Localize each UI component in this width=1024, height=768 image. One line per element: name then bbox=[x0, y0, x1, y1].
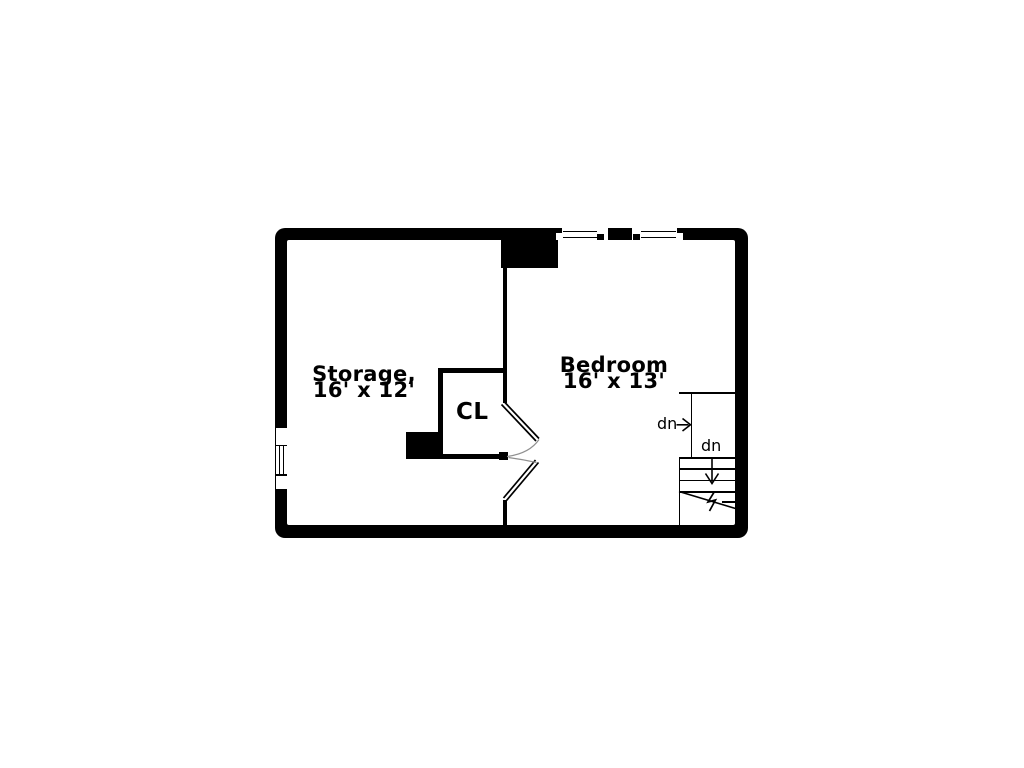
closet-wall-top bbox=[438, 368, 507, 373]
closet-label: CL bbox=[456, 401, 489, 424]
chimney-block bbox=[501, 239, 558, 268]
floor-plan: Storage, 16' x 12' Bedroom 16' x 13' CL … bbox=[0, 0, 1024, 768]
window-top-2-frame-left bbox=[633, 234, 640, 240]
divider-wall-upper bbox=[503, 268, 508, 403]
storage-room-label: Storage, 16' x 12' bbox=[305, 367, 423, 398]
closet-solid-block bbox=[406, 432, 441, 459]
window-left-pane bbox=[279, 445, 285, 475]
window-top-1-sash bbox=[563, 231, 597, 238]
storage-room-dims: 16' x 12' bbox=[305, 383, 423, 399]
bedroom-label: Bedroom 16' x 13' bbox=[554, 358, 674, 389]
window-top-1-frame-left bbox=[556, 228, 562, 233]
stair-tread-4 bbox=[679, 491, 735, 493]
door-jamb-stub bbox=[499, 452, 508, 460]
stair-tread-5-partial bbox=[722, 501, 735, 503]
closet-wall-bottom bbox=[438, 454, 508, 459]
bedroom-dims: 16' x 13' bbox=[554, 374, 674, 390]
window-top-1-frame-right bbox=[597, 234, 604, 240]
stair-landing-wall-top bbox=[679, 392, 735, 394]
stair-landing-wall-vertical bbox=[691, 392, 693, 458]
window-top-2-frame-right bbox=[677, 228, 683, 233]
divider-wall-lower bbox=[503, 500, 508, 525]
stair-tread-3 bbox=[679, 480, 735, 482]
stair-tread-1 bbox=[679, 457, 735, 459]
stairs-dn-lower-label: dn bbox=[701, 438, 721, 454]
stair-tread-2 bbox=[679, 468, 735, 470]
stairs-dn-upper-label: dn bbox=[657, 416, 677, 432]
window-top-2-sash bbox=[641, 231, 676, 238]
